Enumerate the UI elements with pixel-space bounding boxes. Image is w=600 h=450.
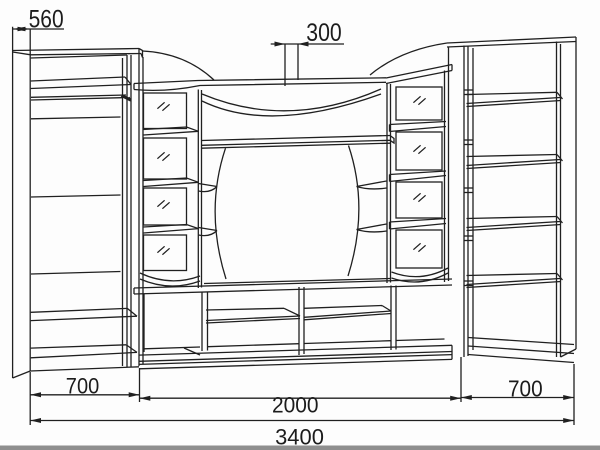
svg-text:560: 560 [29,5,64,33]
svg-text:700: 700 [508,375,543,401]
svg-text:2000: 2000 [272,392,319,418]
svg-text:300: 300 [306,18,341,46]
svg-text:700: 700 [66,373,99,398]
